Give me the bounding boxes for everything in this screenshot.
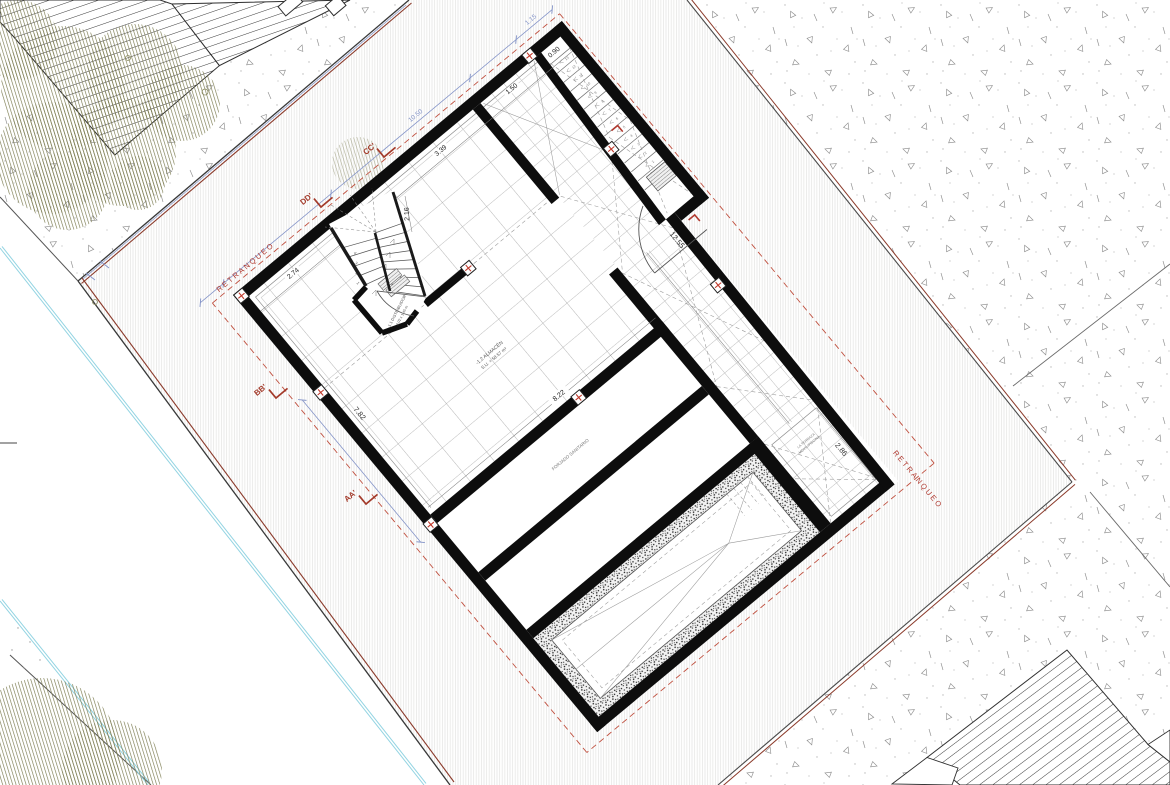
svg-text:2.16: 2.16 <box>404 207 411 221</box>
